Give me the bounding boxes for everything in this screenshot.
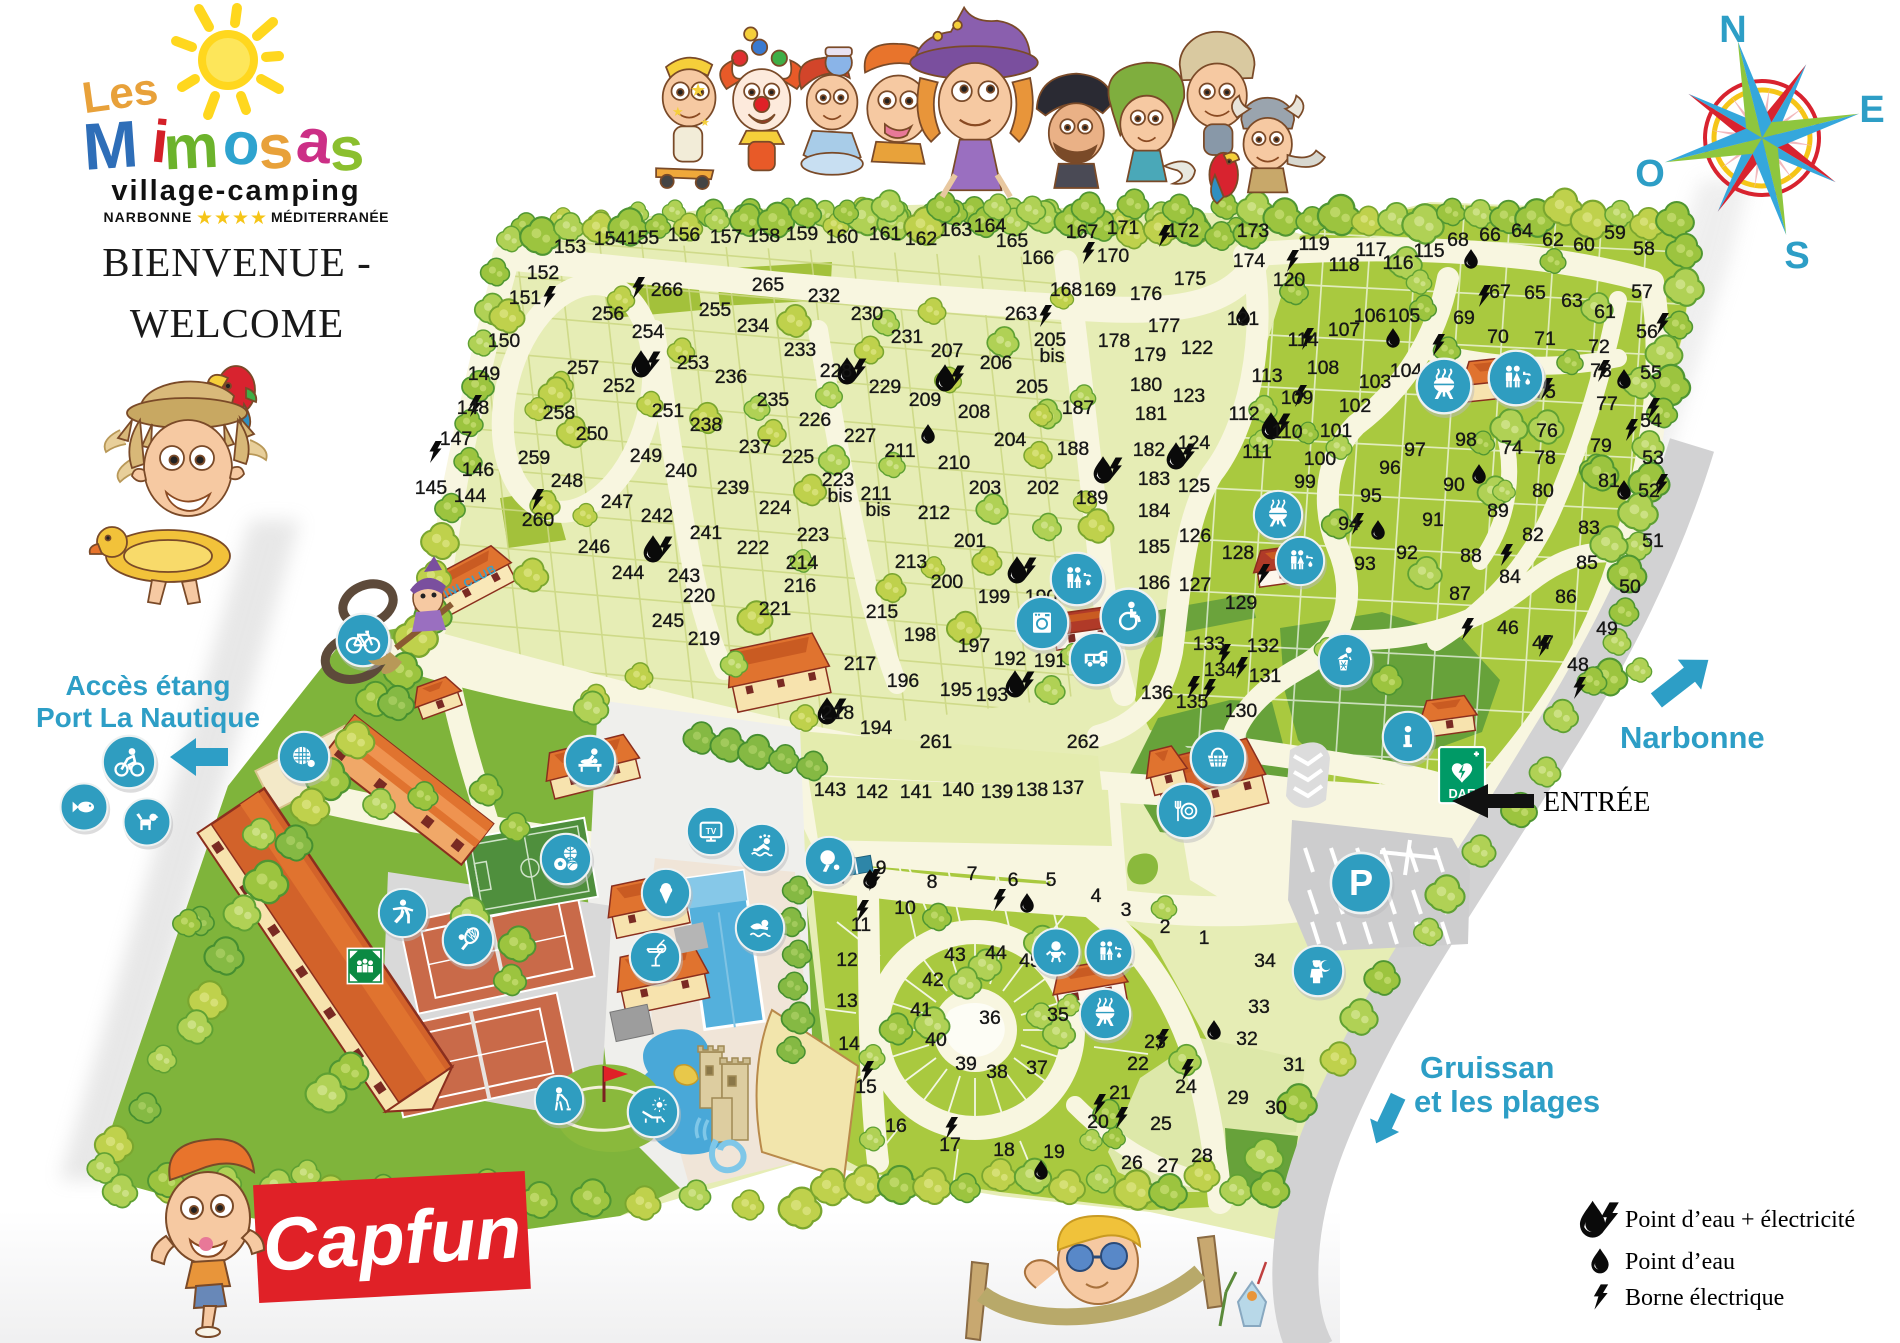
svg-text:238: 238 (690, 414, 723, 436)
svg-text:79: 79 (1590, 435, 1612, 457)
svg-text:★: ★ (690, 80, 706, 100)
svg-text:village-camping: village-camping (111, 175, 360, 207)
svg-text:72: 72 (1588, 336, 1610, 358)
svg-text:50: 50 (1619, 576, 1641, 598)
svg-text:95: 95 (1360, 485, 1382, 507)
svg-text:Port La Nautique: Port La Nautique (36, 702, 260, 733)
svg-text:213: 213 (895, 551, 928, 573)
svg-text:249: 249 (630, 445, 663, 467)
svg-text:207: 207 (931, 340, 964, 362)
svg-text:BIENVENUE -: BIENVENUE - (102, 239, 371, 285)
svg-text:154: 154 (594, 228, 627, 250)
svg-text:28: 28 (1191, 1145, 1213, 1167)
svg-text:196: 196 (887, 670, 920, 692)
svg-text:3: 3 (1121, 899, 1132, 921)
svg-text:38: 38 (986, 1061, 1008, 1083)
svg-text:146: 146 (462, 459, 495, 481)
svg-text:149: 149 (468, 363, 501, 385)
svg-text:199: 199 (978, 586, 1011, 608)
svg-text:182: 182 (1133, 439, 1166, 461)
svg-text:Narbonne: Narbonne (1620, 720, 1765, 755)
svg-text:2: 2 (1160, 916, 1171, 938)
svg-text:144: 144 (454, 485, 487, 507)
svg-text:bis: bis (828, 485, 853, 507)
svg-text:59: 59 (1604, 222, 1626, 244)
svg-text:248: 248 (551, 470, 584, 492)
svg-text:210: 210 (938, 452, 971, 474)
svg-text:85: 85 (1576, 552, 1598, 574)
svg-text:108: 108 (1307, 357, 1340, 379)
svg-text:217: 217 (844, 653, 877, 675)
svg-text:16: 16 (885, 1115, 907, 1137)
svg-text:43: 43 (944, 944, 966, 966)
svg-text:173: 173 (1237, 220, 1270, 242)
svg-text:★: ★ (196, 208, 213, 229)
svg-text:91: 91 (1422, 509, 1444, 531)
svg-text:10: 10 (894, 897, 916, 919)
svg-text:19: 19 (1043, 1141, 1065, 1163)
svg-text:124: 124 (1178, 432, 1211, 454)
svg-text:224: 224 (759, 497, 792, 519)
svg-text:225: 225 (782, 446, 815, 468)
svg-text:105: 105 (1388, 305, 1421, 327)
svg-text:185: 185 (1138, 536, 1171, 558)
svg-text:254: 254 (632, 321, 665, 343)
svg-text:121: 121 (1227, 308, 1260, 330)
svg-text:171: 171 (1107, 217, 1140, 239)
svg-text:222: 222 (737, 537, 770, 559)
svg-text:214: 214 (786, 552, 819, 574)
svg-text:13: 13 (836, 990, 858, 1012)
svg-text:20: 20 (1087, 1111, 1109, 1133)
svg-text:WELCOME: WELCOME (130, 300, 344, 346)
svg-text:30: 30 (1265, 1097, 1287, 1119)
svg-text:131: 131 (1249, 665, 1282, 687)
svg-text:177: 177 (1148, 315, 1181, 337)
svg-text:64: 64 (1511, 220, 1533, 242)
svg-text:71: 71 (1534, 328, 1556, 350)
svg-text:250: 250 (576, 423, 609, 445)
svg-text:et les plages: et les plages (1414, 1084, 1600, 1119)
svg-text:218: 218 (822, 702, 855, 724)
svg-text:192: 192 (994, 648, 1027, 670)
svg-text:Capfun: Capfun (261, 1189, 523, 1286)
svg-text:193: 193 (976, 684, 1009, 706)
svg-text:8: 8 (927, 871, 938, 893)
svg-text:Point d’eau + électricité: Point d’eau + électricité (1625, 1207, 1855, 1233)
svg-text:262: 262 (1067, 731, 1100, 753)
svg-text:98: 98 (1455, 429, 1477, 451)
svg-text:240: 240 (665, 460, 698, 482)
svg-text:★: ★ (700, 117, 710, 129)
svg-text:246: 246 (578, 536, 611, 558)
svg-text:155: 155 (627, 227, 660, 249)
svg-text:★: ★ (232, 208, 249, 229)
svg-text:86: 86 (1555, 586, 1577, 608)
svg-text:161: 161 (869, 223, 902, 245)
svg-text:80: 80 (1532, 480, 1554, 502)
svg-text:178: 178 (1098, 330, 1131, 352)
svg-text:48: 48 (1567, 654, 1589, 676)
svg-text:62: 62 (1542, 229, 1564, 251)
svg-text:172: 172 (1167, 220, 1200, 242)
svg-text:143: 143 (814, 779, 847, 801)
svg-text:90: 90 (1443, 474, 1465, 496)
svg-text:77: 77 (1596, 393, 1618, 415)
svg-text:O: O (1635, 153, 1665, 195)
svg-text:89: 89 (1487, 500, 1509, 522)
svg-text:200: 200 (931, 571, 964, 593)
svg-text:27: 27 (1157, 1155, 1179, 1177)
svg-text:134: 134 (1204, 659, 1237, 681)
svg-text:188: 188 (1057, 438, 1090, 460)
svg-text:56: 56 (1636, 321, 1658, 343)
svg-text:205: 205 (1016, 376, 1049, 398)
svg-text:4: 4 (1091, 885, 1102, 907)
svg-text:NARBONNE: NARBONNE (104, 209, 193, 225)
svg-text:46: 46 (1497, 617, 1519, 639)
svg-text:166: 166 (1022, 247, 1055, 269)
svg-text:156: 156 (668, 224, 701, 246)
svg-text:63: 63 (1561, 290, 1583, 312)
svg-text:94: 94 (1338, 513, 1360, 535)
svg-text:S: S (1784, 235, 1809, 277)
svg-text:123: 123 (1173, 385, 1206, 407)
svg-text:170: 170 (1097, 245, 1130, 267)
svg-text:76: 76 (1536, 420, 1558, 442)
svg-text:233: 233 (784, 339, 817, 361)
svg-text:118: 118 (1328, 254, 1359, 276)
svg-text:52: 52 (1638, 480, 1660, 502)
svg-text:216: 216 (784, 575, 817, 597)
svg-text:65: 65 (1524, 282, 1546, 304)
svg-text:58: 58 (1633, 238, 1655, 260)
svg-text:263: 263 (1005, 303, 1038, 325)
svg-text:120: 120 (1273, 269, 1306, 291)
svg-text:84: 84 (1499, 566, 1521, 588)
svg-text:73: 73 (1590, 360, 1612, 382)
svg-text:61: 61 (1594, 301, 1616, 323)
svg-text:266: 266 (651, 279, 684, 301)
svg-text:228: 228 (820, 360, 853, 382)
svg-text:★: ★ (672, 104, 684, 119)
svg-text:25: 25 (1150, 1113, 1172, 1135)
svg-text:201: 201 (954, 530, 987, 552)
svg-text:bis: bis (1040, 345, 1065, 367)
svg-text:11: 11 (851, 914, 871, 936)
svg-text:229: 229 (869, 376, 902, 398)
svg-text:33: 33 (1248, 996, 1270, 1018)
svg-text:39: 39 (955, 1053, 977, 1075)
svg-text:132: 132 (1247, 635, 1280, 657)
svg-text:237: 237 (739, 436, 772, 458)
svg-text:100: 100 (1304, 448, 1337, 470)
svg-text:142: 142 (856, 781, 889, 803)
svg-text:179: 179 (1134, 344, 1167, 366)
svg-text:66: 66 (1479, 224, 1501, 246)
svg-text:215: 215 (866, 601, 899, 623)
svg-text:116: 116 (1382, 252, 1413, 274)
svg-text:102: 102 (1339, 395, 1372, 417)
svg-text:53: 53 (1642, 447, 1664, 469)
svg-text:176: 176 (1130, 283, 1163, 305)
svg-text:136: 136 (1141, 682, 1174, 704)
svg-text:114: 114 (1287, 329, 1318, 351)
svg-text:119: 119 (1298, 233, 1329, 255)
svg-text:68: 68 (1447, 229, 1469, 251)
svg-text:189: 189 (1076, 487, 1109, 509)
svg-text:26: 26 (1121, 1152, 1143, 1174)
svg-text:Gruissan: Gruissan (1420, 1050, 1554, 1085)
svg-text:★: ★ (250, 208, 267, 229)
svg-text:88: 88 (1460, 545, 1482, 567)
svg-text:258: 258 (543, 402, 576, 424)
svg-text:7: 7 (967, 863, 978, 885)
svg-text:184: 184 (1138, 500, 1171, 522)
svg-text:87: 87 (1449, 583, 1471, 605)
svg-text:230: 230 (851, 303, 884, 325)
svg-text:35: 35 (1047, 1004, 1069, 1026)
svg-text:160: 160 (826, 226, 859, 248)
svg-text:169: 169 (1084, 279, 1117, 301)
svg-text:152: 152 (527, 262, 560, 284)
svg-text:251: 251 (652, 400, 685, 422)
svg-text:195: 195 (940, 679, 973, 701)
svg-text:81: 81 (1598, 470, 1620, 492)
svg-text:162: 162 (905, 228, 938, 250)
svg-text:163: 163 (940, 219, 973, 241)
svg-text:206: 206 (980, 352, 1013, 374)
svg-text:6: 6 (1008, 869, 1019, 891)
svg-text:82: 82 (1522, 524, 1544, 546)
svg-text:67: 67 (1489, 281, 1511, 303)
svg-text:49: 49 (1596, 618, 1618, 640)
svg-text:212: 212 (918, 502, 951, 524)
svg-text:51: 51 (1642, 530, 1664, 552)
svg-text:m: m (162, 112, 221, 184)
svg-text:265: 265 (752, 274, 785, 296)
svg-text:167: 167 (1066, 221, 1099, 243)
svg-text:236: 236 (715, 366, 748, 388)
svg-text:109: 109 (1281, 387, 1314, 409)
svg-text:208: 208 (958, 401, 991, 423)
svg-text:235: 235 (757, 389, 790, 411)
svg-text:209: 209 (909, 389, 942, 411)
svg-text:130: 130 (1225, 700, 1258, 722)
svg-text:21: 21 (1109, 1082, 1131, 1104)
svg-text:159: 159 (786, 223, 819, 245)
svg-text:180: 180 (1130, 374, 1163, 396)
svg-text:N: N (1719, 9, 1746, 51)
svg-text:232: 232 (808, 285, 841, 307)
svg-text:M: M (80, 106, 140, 184)
svg-text:1: 1 (1199, 927, 1210, 949)
svg-text:137: 137 (1052, 777, 1085, 799)
svg-text:247: 247 (601, 491, 634, 513)
svg-text:36: 36 (979, 1007, 1001, 1029)
svg-text:183: 183 (1138, 468, 1171, 490)
svg-text:139: 139 (981, 781, 1014, 803)
svg-text:244: 244 (612, 562, 645, 584)
svg-text:Point d’eau: Point d’eau (1625, 1249, 1735, 1275)
svg-text:24: 24 (1175, 1076, 1197, 1098)
svg-text:204: 204 (994, 429, 1027, 451)
svg-text:197: 197 (958, 635, 991, 657)
svg-text:Accès étang: Accès étang (66, 670, 231, 701)
svg-text:203: 203 (969, 477, 1002, 499)
svg-text:92: 92 (1396, 542, 1418, 564)
svg-text:219: 219 (688, 628, 721, 650)
svg-text:145: 145 (415, 477, 448, 499)
svg-text:57: 57 (1631, 281, 1653, 303)
svg-text:231: 231 (891, 326, 924, 348)
svg-text:112: 112 (1228, 403, 1259, 425)
svg-text:259: 259 (518, 447, 551, 469)
svg-text:97: 97 (1404, 439, 1426, 461)
svg-text:107: 107 (1328, 319, 1361, 341)
svg-text:226: 226 (799, 409, 832, 431)
svg-text:96: 96 (1379, 457, 1401, 479)
svg-text:41: 41 (910, 999, 932, 1021)
svg-text:47: 47 (1532, 632, 1554, 654)
svg-text:245: 245 (652, 610, 685, 632)
svg-text:★: ★ (214, 208, 231, 229)
svg-text:153: 153 (554, 236, 587, 258)
svg-text:Borne électrique: Borne électrique (1625, 1285, 1784, 1311)
svg-text:55: 55 (1640, 362, 1662, 384)
svg-text:187: 187 (1062, 397, 1095, 419)
svg-text:220: 220 (683, 585, 716, 607)
svg-text:E: E (1859, 89, 1884, 131)
svg-text:113: 113 (1251, 365, 1282, 387)
svg-text:126: 126 (1179, 525, 1212, 547)
svg-text:150: 150 (488, 330, 521, 352)
svg-text:151: 151 (509, 287, 542, 309)
svg-text:243: 243 (668, 565, 701, 587)
svg-text:127: 127 (1179, 574, 1212, 596)
svg-text:ENTRÉE: ENTRÉE (1543, 787, 1650, 818)
svg-text:111: 111 (1242, 441, 1272, 463)
svg-text:MÉDITERRANÉE: MÉDITERRANÉE (271, 209, 389, 225)
svg-text:54: 54 (1640, 410, 1662, 432)
svg-text:42: 42 (922, 969, 944, 991)
svg-text:186: 186 (1138, 572, 1171, 594)
svg-text:239: 239 (717, 477, 750, 499)
svg-text:242: 242 (641, 505, 674, 527)
svg-text:37: 37 (1026, 1057, 1048, 1079)
svg-text:252: 252 (603, 375, 636, 397)
svg-text:198: 198 (904, 624, 937, 646)
svg-text:194: 194 (860, 717, 893, 739)
svg-text:bis: bis (866, 499, 891, 521)
svg-text:148: 148 (457, 397, 490, 419)
svg-text:12: 12 (836, 949, 858, 971)
svg-text:260: 260 (522, 509, 555, 531)
svg-text:15: 15 (855, 1076, 877, 1098)
svg-text:133: 133 (1193, 633, 1226, 655)
svg-text:181: 181 (1135, 403, 1168, 425)
svg-text:5: 5 (1046, 869, 1057, 891)
svg-text:103: 103 (1359, 371, 1392, 393)
svg-text:17: 17 (939, 1134, 961, 1156)
svg-text:32: 32 (1236, 1028, 1258, 1050)
svg-text:70: 70 (1487, 326, 1509, 348)
svg-text:256: 256 (592, 303, 625, 325)
svg-text:211: 211 (884, 440, 915, 462)
svg-text:110: 110 (1271, 421, 1302, 443)
svg-text:60: 60 (1573, 234, 1595, 256)
svg-text:83: 83 (1578, 517, 1600, 539)
svg-text:18: 18 (993, 1139, 1015, 1161)
svg-text:93: 93 (1354, 553, 1376, 575)
svg-text:101: 101 (1320, 420, 1353, 442)
svg-text:31: 31 (1283, 1054, 1305, 1076)
svg-text:138: 138 (1016, 779, 1049, 801)
svg-text:135: 135 (1176, 691, 1209, 713)
svg-text:223: 223 (797, 524, 830, 546)
svg-text:221: 221 (759, 598, 792, 620)
svg-text:227: 227 (844, 425, 877, 447)
svg-text:125: 125 (1178, 475, 1211, 497)
svg-text:44: 44 (985, 942, 1007, 964)
svg-text:140: 140 (942, 779, 975, 801)
svg-text:122: 122 (1181, 337, 1214, 359)
svg-text:s: s (255, 112, 295, 184)
svg-text:261: 261 (920, 731, 953, 753)
svg-text:23: 23 (1144, 1031, 1166, 1053)
svg-text:40: 40 (925, 1029, 947, 1051)
svg-text:241: 241 (690, 522, 723, 544)
svg-text:128: 128 (1222, 542, 1255, 564)
svg-text:253: 253 (677, 352, 710, 374)
svg-text:147: 147 (440, 428, 473, 450)
svg-text:9: 9 (876, 857, 887, 879)
svg-text:129: 129 (1225, 592, 1258, 614)
svg-text:174: 174 (1233, 250, 1266, 272)
svg-text:69: 69 (1453, 307, 1475, 329)
svg-text:115: 115 (1413, 240, 1444, 262)
svg-text:257: 257 (567, 357, 600, 379)
svg-text:234: 234 (737, 315, 770, 337)
svg-text:34: 34 (1254, 950, 1276, 972)
svg-text:74: 74 (1501, 437, 1523, 459)
svg-text:202: 202 (1027, 477, 1060, 499)
svg-text:158: 158 (748, 225, 781, 247)
svg-text:175: 175 (1174, 268, 1207, 290)
svg-text:14: 14 (838, 1033, 860, 1055)
svg-text:168: 168 (1050, 279, 1083, 301)
svg-text:99: 99 (1294, 471, 1316, 493)
svg-text:157: 157 (710, 226, 743, 248)
svg-text:29: 29 (1227, 1087, 1249, 1109)
svg-text:141: 141 (900, 781, 933, 803)
svg-text:255: 255 (699, 299, 732, 321)
svg-text:22: 22 (1127, 1053, 1149, 1075)
svg-text:78: 78 (1534, 447, 1556, 469)
